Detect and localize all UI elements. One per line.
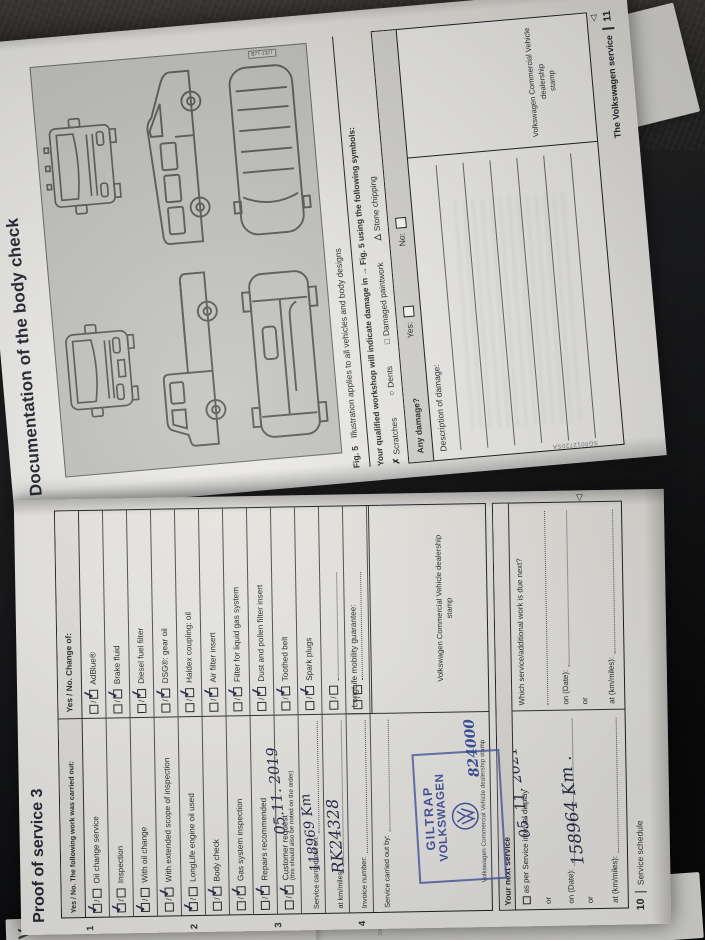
legend-item-dents: ○Dents bbox=[383, 366, 397, 397]
page-footer: The Volkswagen service 11 bbox=[601, 10, 624, 139]
yes-checkbox bbox=[402, 306, 414, 318]
yes-no-checkbox-pair: /✓ bbox=[161, 688, 170, 712]
page-title: Documentation of the body check bbox=[3, 217, 47, 497]
yes-no-checkbox-pair: /✓ bbox=[89, 690, 98, 714]
yes-checkbox bbox=[213, 902, 222, 911]
yes-checkbox bbox=[285, 900, 294, 909]
checkbox-slash: / bbox=[261, 897, 269, 899]
van-side-view-icon bbox=[123, 60, 221, 256]
yes-no-checkbox-pair: ✓/ bbox=[117, 888, 126, 912]
next-service-left: as per Service interval display or on (D… bbox=[513, 710, 628, 910]
next-date-field: on (Date): bbox=[557, 511, 570, 705]
no-checkbox bbox=[141, 888, 150, 897]
change-of-rows: /✓AdBlue®/✓Brake fluid/✓Diesel fuel filt… bbox=[79, 506, 371, 719]
checkbox-slash: / bbox=[162, 699, 170, 701]
yes-no-checkbox-pair: /✓ bbox=[209, 687, 218, 711]
underside-view-icon bbox=[236, 256, 334, 452]
change-of-row: /✓Spark plugs bbox=[295, 507, 323, 714]
interval-label: as per Service interval display bbox=[520, 790, 531, 894]
change-of-row: / bbox=[319, 506, 347, 713]
yes-option: Yes: bbox=[402, 306, 416, 339]
row-label: LongLife engine oil used bbox=[187, 793, 198, 882]
stamp-cell-line1: Volkswagen Commercial Vehicle dealership bbox=[522, 27, 547, 137]
no-checkbox: ✓ bbox=[209, 687, 218, 696]
no-checkbox: ✓ bbox=[161, 688, 170, 697]
change-of-row: /✓Toothed belt bbox=[271, 507, 299, 714]
row-label: Brake fluid bbox=[112, 645, 122, 684]
stamp-cell-line2: stamp bbox=[444, 598, 453, 619]
footer-divider bbox=[602, 27, 614, 30]
page-number: 10 bbox=[635, 899, 647, 911]
checkbox-slash: / bbox=[90, 701, 98, 703]
legend-item-scratches: ✗Scratches bbox=[387, 417, 402, 465]
row-label: Spark plugs bbox=[304, 638, 314, 681]
footer-divider bbox=[635, 891, 647, 893]
dotted-leader bbox=[379, 720, 391, 833]
page-footer: 10 Service schedule bbox=[633, 820, 647, 910]
handwritten-tick: ✓ bbox=[225, 685, 240, 699]
yes-no-checkbox-pair: /✓ bbox=[137, 689, 146, 713]
van-front-view-icon bbox=[55, 308, 145, 433]
stamp-cell-line2: stamp bbox=[547, 70, 558, 91]
yes-no-checkbox-pair: / bbox=[329, 685, 338, 709]
stone-chipping-symbol-icon: △ bbox=[371, 234, 383, 241]
yes-checkbox bbox=[89, 705, 98, 714]
field-invoice-number: Invoice number: bbox=[347, 714, 374, 912]
yes-checkbox bbox=[113, 704, 122, 713]
handwritten-tick: ✓ bbox=[205, 884, 220, 898]
longlife-guarantee-cell: LongLife mobility guarantee: bbox=[343, 506, 373, 714]
scratch-symbol-icon: ✗ bbox=[391, 457, 403, 465]
carried-out-row: /✓Body check bbox=[203, 717, 230, 915]
stamp-cell-line1: Volkswagen Commercial Vehicle dealership bbox=[433, 535, 445, 682]
truck-front-view-icon bbox=[37, 104, 127, 229]
no-checkbox: ✓ bbox=[213, 886, 222, 895]
dotted-leader bbox=[356, 720, 368, 853]
pickup-side-view-icon bbox=[141, 265, 239, 461]
checkbox-slash: / bbox=[210, 698, 218, 700]
yes-checkbox bbox=[261, 901, 270, 910]
yes-no-checkbox-pair: /✓ bbox=[113, 689, 122, 713]
row-label: Haldex coupling: oil bbox=[184, 612, 194, 683]
next-date-field: on (Date): bbox=[563, 718, 576, 903]
row-label: With extended scope of inspection bbox=[162, 758, 173, 883]
change-of-row: /✓Air filter insert bbox=[199, 509, 227, 716]
legend-label: Stone chipping bbox=[367, 176, 382, 232]
yes-checkbox bbox=[165, 902, 174, 911]
yes-no-checkbox-pair: ✓/ bbox=[141, 888, 150, 912]
page-proof-of-service: Proof of service 3 1 2 3 4 Yes / No. The… bbox=[14, 489, 671, 935]
handwritten-tick: ✓ bbox=[201, 685, 216, 699]
yes-checkbox: ✓ bbox=[93, 904, 102, 913]
change-of-row: /✓AdBlue® bbox=[79, 511, 107, 718]
handwritten-tick: ✓ bbox=[229, 884, 244, 898]
interval-display-option: as per Service interval display bbox=[519, 719, 531, 904]
yes-label: Yes: bbox=[404, 322, 415, 339]
row-label: Oil change service bbox=[91, 816, 101, 884]
no-checkbox: ✓ bbox=[185, 688, 194, 697]
yes-no-checkbox-pair: ✓/ bbox=[93, 888, 102, 912]
field-label: Invoice number: bbox=[359, 856, 369, 908]
answer-line bbox=[535, 511, 548, 705]
no-checkbox: ✓ bbox=[89, 690, 98, 699]
row-label: DSG®: gear oil bbox=[160, 628, 170, 683]
dotted-leader bbox=[607, 718, 619, 853]
figure-caption-label: Fig. 5 bbox=[350, 446, 362, 469]
row-label: AdBlue® bbox=[88, 652, 98, 685]
show-through-ghost-text bbox=[454, 193, 581, 431]
checkbox-slash: / bbox=[165, 898, 173, 900]
yes-checkbox bbox=[305, 701, 314, 710]
continuation-triangle-icon: ◁ bbox=[588, 14, 600, 22]
yes-no-checkbox-pair: /✓ bbox=[285, 885, 294, 909]
yes-checkbox bbox=[281, 701, 290, 710]
yes-no-checkbox-pair: /✓ bbox=[237, 886, 246, 910]
yes-checkbox bbox=[137, 704, 146, 713]
carried-out-row: /✓With extended scope of inspection bbox=[155, 717, 182, 915]
yes-no-checkbox-pair: /✓ bbox=[281, 686, 290, 710]
field-label: at (km/miles): bbox=[610, 856, 620, 903]
yes-no-checkbox-pair: /✓ bbox=[261, 886, 270, 910]
footer-text: Service schedule bbox=[634, 820, 645, 885]
no-checkbox: ✓ bbox=[281, 686, 290, 695]
handwritten-tick: ✓ bbox=[249, 685, 264, 699]
yes-no-checkbox-pair: ✓/ bbox=[189, 887, 198, 911]
no-option: No: bbox=[395, 217, 409, 247]
dealership-stamp-cell-right: Volkswagen Commercial Vehicle dealership… bbox=[369, 504, 489, 714]
checkbox-slash: / bbox=[258, 698, 266, 700]
change-of-row: /✓Dust and pollen filter insert bbox=[247, 508, 275, 715]
no-checkbox bbox=[329, 685, 338, 694]
change-of-row: /✓DSG®: gear oil bbox=[151, 509, 179, 716]
photo-of-service-booklet: Fig. code Del V Documentation of the bod… bbox=[0, 0, 705, 940]
blank-dotted-entry bbox=[326, 572, 339, 680]
paintwork-symbol-icon: □ bbox=[381, 339, 391, 345]
no-checkbox: ✓ bbox=[257, 687, 266, 696]
yes-no-checkbox-pair: /✓ bbox=[165, 887, 174, 911]
checkbox-slash: / bbox=[285, 896, 293, 898]
no-checkbox: ✓ bbox=[305, 686, 314, 695]
field-label: at km/miles: bbox=[335, 870, 345, 909]
or-label: or bbox=[577, 510, 589, 704]
margin-number: 3 bbox=[273, 922, 284, 927]
next-km-field: at (km/miles): bbox=[603, 510, 616, 704]
damage-table: Any damage? Yes: No: Description of dama… bbox=[371, 12, 625, 463]
checkbox-slash: / bbox=[234, 698, 242, 700]
dent-symbol-icon: ○ bbox=[386, 390, 396, 396]
stamp-cell-label: Volkswagen Commercial Vehicle dealership… bbox=[522, 20, 563, 142]
handwritten-tick: ✓ bbox=[85, 902, 100, 916]
yes-no-checkbox-pair: /✓ bbox=[257, 687, 266, 711]
checkbox-slash: / bbox=[114, 700, 122, 702]
yes-checkbox: ✓ bbox=[189, 902, 198, 911]
yes-checkbox: ✓ bbox=[141, 903, 150, 912]
field-label: on (Date): bbox=[561, 670, 571, 705]
change-of-row: /✓Brake fluid bbox=[103, 510, 131, 717]
yes-no-checkbox-pair: /✓ bbox=[185, 688, 194, 712]
vw-roundel-icon bbox=[449, 800, 481, 832]
page-number: 11 bbox=[601, 10, 614, 22]
checkbox-slash: / bbox=[213, 897, 221, 899]
margin-number: 2 bbox=[189, 924, 200, 929]
vehicle-figure: B7T-1327 bbox=[29, 43, 342, 478]
legend-label: Damaged paintwork bbox=[374, 262, 390, 336]
yes-checkbox bbox=[329, 701, 338, 710]
yes-checkbox bbox=[237, 901, 246, 910]
yes-checkbox bbox=[161, 704, 170, 713]
or-label: or bbox=[541, 719, 553, 904]
change-of-row: /✓Filter for liquid gas system bbox=[223, 508, 251, 715]
dotted-leader bbox=[603, 510, 616, 654]
carried-out-row: ✓/With oil change bbox=[131, 718, 158, 916]
checkbox-slash: / bbox=[282, 697, 290, 699]
no-checkbox: ✓ bbox=[285, 885, 294, 894]
carried-out-row: ✓/Oil change service bbox=[83, 719, 110, 917]
handwritten-tick: ✓ bbox=[105, 687, 120, 701]
row-label: Gas system inspection bbox=[235, 799, 245, 882]
no-checkbox: ✓ bbox=[237, 886, 246, 895]
change-of-row: /✓Haldex coupling: oil bbox=[175, 509, 203, 716]
row-label: Filter for liquid gas system bbox=[231, 587, 242, 682]
no-checkbox: ✓ bbox=[137, 689, 146, 698]
carried-out-row: /✓Gas system inspection bbox=[227, 716, 254, 914]
footer-text: The Volkswagen service bbox=[604, 35, 623, 139]
handwritten-tick: ✓ bbox=[133, 901, 148, 915]
dealership-stamp-cell: Volkswagen Commercial Vehicle dealership… bbox=[396, 13, 598, 158]
handwritten-tick: ✓ bbox=[277, 883, 292, 897]
yes-checkbox bbox=[257, 702, 266, 711]
handwritten-tick: ✓ bbox=[253, 884, 268, 898]
page-body-check: Documentation of the body check bbox=[0, 0, 667, 512]
handwritten-tick: ✓ bbox=[157, 885, 172, 899]
dotted-leader bbox=[557, 511, 570, 667]
no-checkbox: ✓ bbox=[261, 886, 270, 895]
handwritten-tick: ✓ bbox=[109, 901, 124, 915]
row-label: Diesel fuel filter bbox=[136, 628, 146, 684]
no-checkbox bbox=[189, 887, 198, 896]
no-checkbox: ✓ bbox=[113, 689, 122, 698]
checkbox-slash: / bbox=[237, 897, 245, 899]
legend-label: Dents bbox=[383, 366, 395, 388]
yes-checkbox bbox=[233, 702, 242, 711]
no-checkbox bbox=[395, 217, 407, 229]
row-label: Inspection bbox=[116, 846, 126, 883]
handwritten-tick: ✓ bbox=[297, 684, 312, 698]
page-title: Proof of service 3 bbox=[29, 788, 49, 923]
row-label: With oil change bbox=[139, 827, 149, 883]
no-label: No: bbox=[396, 233, 407, 247]
continuation-triangle-icon: ◁ bbox=[574, 494, 585, 501]
handwritten-tick: ✓ bbox=[81, 687, 96, 701]
next-service-section: Your next service as per Service interva… bbox=[492, 501, 629, 911]
row-label: Toothed belt bbox=[280, 637, 290, 682]
roof-top-view-icon bbox=[218, 52, 316, 248]
no-checkbox: ✓ bbox=[233, 687, 242, 696]
dotted-leader bbox=[563, 718, 576, 865]
yes-no-checkbox-pair: /✓ bbox=[233, 687, 242, 711]
no-checkbox bbox=[117, 888, 126, 897]
checkbox-slash: / bbox=[306, 697, 314, 699]
row-label: Air filter insert bbox=[208, 632, 218, 682]
no-checkbox bbox=[93, 888, 102, 897]
dotted-leader bbox=[535, 511, 548, 705]
yes-no-checkbox-pair: /✓ bbox=[213, 886, 222, 910]
field-label: Service carried out by: bbox=[382, 835, 392, 908]
change-of-row: /✓Diesel fuel filter bbox=[127, 510, 155, 717]
legend-item-stone-chipping: △Stone chipping bbox=[366, 176, 383, 241]
carried-out-row: ✓/Inspection bbox=[107, 718, 134, 916]
no-checkbox: ✓ bbox=[165, 887, 174, 896]
handwritten-tick: ✓ bbox=[181, 900, 196, 914]
margin-number: 4 bbox=[357, 921, 368, 926]
any-damage-question: Any damage? bbox=[411, 398, 426, 454]
checkbox-slash: / bbox=[330, 696, 338, 698]
which-service-question: Which service/additional work is due nex… bbox=[514, 511, 526, 705]
legend-item-paintwork: □Damaged paintwork bbox=[374, 262, 392, 345]
yes-no-checkbox-pair: /✓ bbox=[305, 686, 314, 710]
checkbox-slash: / bbox=[138, 700, 146, 702]
yes-checkbox bbox=[185, 703, 194, 712]
yes-checkbox: ✓ bbox=[117, 903, 126, 912]
handwritten-tick: ✓ bbox=[273, 684, 288, 698]
margin-number: 1 bbox=[85, 926, 96, 931]
giltrap-dealer-stamp: GILTRAP VOLKSWAGEN bbox=[411, 749, 507, 884]
checkbox-slash: / bbox=[186, 699, 194, 701]
field-label: on (Date): bbox=[566, 869, 576, 904]
carried-out-row: ✓/LongLife engine oil used bbox=[179, 717, 206, 915]
yes-checkbox bbox=[209, 703, 218, 712]
stamp-cell-label: Volkswagen Commercial Vehicle dealership… bbox=[433, 511, 457, 706]
left-column-header: Yes / No. The following work was carried… bbox=[59, 719, 86, 917]
or-label: or bbox=[583, 718, 595, 903]
handwritten-tick: ✓ bbox=[153, 686, 168, 700]
next-km-field: at (km/miles): bbox=[607, 718, 620, 903]
row-label: Body check bbox=[212, 839, 222, 881]
handwritten-tick: ✓ bbox=[177, 686, 192, 700]
next-service-right: Which service/additional work is due nex… bbox=[509, 502, 625, 712]
row-label: Dust and pollen filter insert bbox=[255, 585, 266, 682]
description-of-damage-label: Description of damage: bbox=[431, 364, 449, 452]
right-column-header: Yes / No. Change of: bbox=[55, 511, 83, 719]
interval-checkbox bbox=[523, 896, 531, 904]
handwritten-tick: ✓ bbox=[129, 687, 144, 701]
legend-label: Scratches bbox=[388, 417, 401, 455]
carried-out-rows: ✓/Oil change service✓/Inspection✓/With o… bbox=[83, 715, 302, 917]
field-label: at (km/miles): bbox=[607, 657, 617, 704]
row-label: Repairs recommended bbox=[259, 798, 269, 881]
